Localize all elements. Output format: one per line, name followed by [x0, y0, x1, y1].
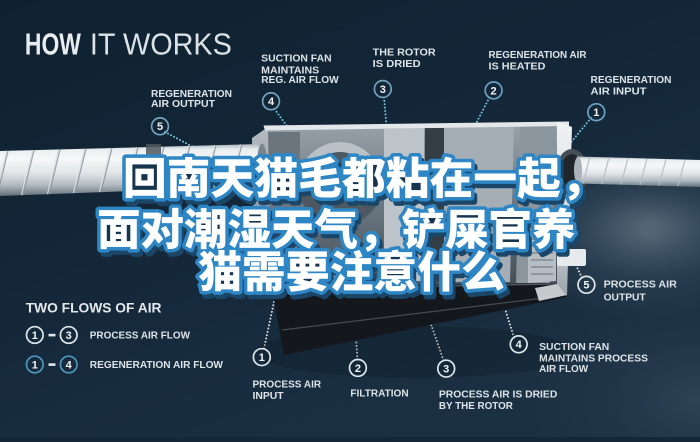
- svg-text:REG. AIR FLOW: REG. AIR FLOW: [261, 75, 339, 86]
- svg-text:THE ROTOR: THE ROTOR: [373, 47, 437, 58]
- svg-text:FILTRATION: FILTRATION: [350, 388, 408, 399]
- svg-text:IS DRIED: IS DRIED: [373, 59, 421, 70]
- svg-text:PROCESS AIR: PROCESS AIR: [604, 280, 678, 291]
- svg-text:OUTPUT: OUTPUT: [604, 292, 647, 303]
- svg-text:1: 1: [593, 107, 599, 119]
- svg-text:3: 3: [66, 330, 72, 342]
- svg-text:1: 1: [32, 330, 38, 342]
- svg-text:4: 4: [66, 359, 73, 371]
- svg-text:IT WORKS: IT WORKS: [90, 27, 232, 61]
- svg-text:5: 5: [157, 121, 163, 133]
- svg-text:SUCTION FAN: SUCTION FAN: [261, 53, 331, 64]
- svg-text:INPUT: INPUT: [253, 391, 285, 402]
- svg-text:REGENERATION AIR: REGENERATION AIR: [489, 50, 588, 61]
- svg-text:HOW: HOW: [25, 27, 81, 61]
- svg-text:PROCESS AIR: PROCESS AIR: [253, 380, 322, 391]
- svg-text:4: 4: [516, 339, 523, 351]
- svg-text:2: 2: [491, 85, 497, 97]
- svg-text:2: 2: [355, 363, 361, 375]
- svg-text:3: 3: [380, 84, 386, 96]
- svg-text:IS HEATED: IS HEATED: [489, 61, 546, 72]
- svg-text:BY THE ROTOR: BY THE ROTOR: [439, 401, 514, 412]
- svg-text:4: 4: [268, 96, 275, 108]
- svg-text:REGENERATION AIR FLOW: REGENERATION AIR FLOW: [90, 360, 224, 371]
- svg-text:MAINTAINS PROCESS: MAINTAINS PROCESS: [539, 353, 648, 364]
- svg-text:REGENERATION: REGENERATION: [591, 75, 672, 86]
- svg-text:AIR OUTPUT: AIR OUTPUT: [151, 99, 216, 110]
- svg-text:TWO FLOWS OF AIR: TWO FLOWS OF AIR: [26, 301, 162, 316]
- svg-text:PROCESS AIR FLOW: PROCESS AIR FLOW: [90, 331, 191, 342]
- svg-text:SUCTION FAN: SUCTION FAN: [539, 342, 609, 353]
- svg-text:1: 1: [32, 359, 38, 371]
- svg-text:PROCESS AIR IS DRIED: PROCESS AIR IS DRIED: [439, 389, 557, 400]
- svg-text:3: 3: [443, 364, 449, 376]
- svg-text:AIR INPUT: AIR INPUT: [591, 87, 648, 98]
- svg-text:1: 1: [259, 352, 265, 364]
- svg-text:AIR FLOW: AIR FLOW: [539, 364, 588, 375]
- svg-text:5: 5: [583, 280, 589, 292]
